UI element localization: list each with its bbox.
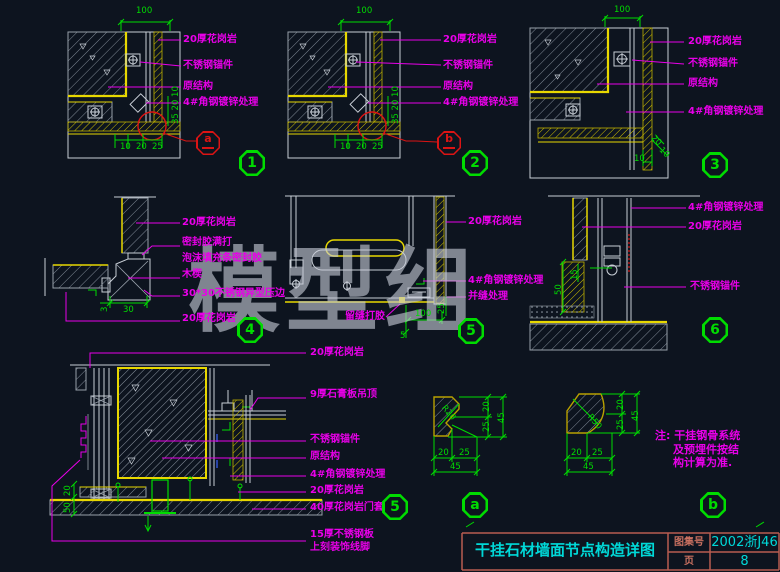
- page-label: 页: [668, 557, 710, 567]
- detail-6-drawing: [530, 196, 700, 350]
- da-dim-h2: 45: [450, 463, 461, 472]
- d4-label-granite-bottom: 20厚花岗岩: [182, 314, 236, 324]
- d7-label-structure: 原结构: [310, 452, 340, 462]
- db-dim-h2: 45: [583, 463, 594, 472]
- d7-label-steel-plate: 15厚不锈钢板: [310, 530, 374, 540]
- atlas-number-value: 2002浙J46: [710, 536, 779, 549]
- d3-dim-bottom: 10: [634, 155, 645, 164]
- d2-label-granite: 20厚花岗岩: [443, 35, 497, 45]
- db-dim-h0: 20: [571, 449, 582, 458]
- d7-dim-50: 50: [64, 502, 73, 513]
- db-dim-v1: 25: [617, 419, 626, 430]
- d7-label-decor-line: 上刻装饰线脚: [310, 543, 370, 553]
- d3-dim-top: 100: [614, 6, 630, 15]
- d1-dim-top: 100: [136, 7, 152, 16]
- d6-badge: 6: [702, 317, 728, 343]
- da-dim-h1: 25: [459, 449, 470, 458]
- da-dim-v2: 45: [498, 412, 507, 423]
- detail-4-drawing: [45, 197, 180, 321]
- d3-label-anchor: 不锈钢锚件: [688, 59, 738, 69]
- d5-label-angle-steel: 4#角钢镀锌处理: [468, 276, 543, 286]
- d7-dim-20: 20: [64, 485, 73, 496]
- d4-label-steel-edge: 30*30不锈钢异型压边: [182, 289, 285, 299]
- detail-7-drawing: [50, 353, 322, 541]
- d4-label-granite-top: 20厚花岗岩: [182, 218, 236, 228]
- d7-label-granite-top: 20厚花岗岩: [310, 348, 364, 358]
- da-dim-v0: 20: [483, 401, 492, 412]
- cad-sheet: 模型组 20厚花岗岩 不锈钢锚件 原结构 4#角钢镀锌处理 100 10 20 …: [0, 0, 780, 572]
- da-badge: a: [462, 492, 488, 518]
- d7-label-door-frame: 40厚花岗岩门套: [310, 503, 384, 513]
- d3-label-angle-steel: 4#角钢镀锌处理: [688, 107, 763, 117]
- d6-label-angle-steel: 4#角钢镀锌处理: [688, 203, 763, 213]
- d4-badge: 4: [237, 317, 263, 343]
- d7-label-anchor: 不锈钢锚件: [310, 435, 360, 445]
- d7-label-angle-steel: 4#角钢镀锌处理: [310, 470, 385, 480]
- d5-dim-25: 25: [438, 303, 447, 314]
- d7-label-granite: 20厚花岗岩: [310, 486, 364, 496]
- detail-b-drawing: [564, 391, 640, 476]
- d2-callout-b: b: [437, 131, 461, 155]
- note-line-3: 构计算为准.: [673, 457, 732, 468]
- sheet-title: 干挂石材墙面节点构造详图: [462, 543, 668, 558]
- db-dim-v2: 45: [632, 410, 641, 421]
- d5-dim-5: 5: [400, 332, 405, 341]
- d7-label-gypsum-ceiling: 9厚石膏板吊顶: [310, 390, 377, 400]
- d1-dim-b0: 10: [120, 143, 131, 152]
- d4-label-foam: 泡沫填充条密封胶: [182, 254, 262, 264]
- d5-label-joint-caulk: 留缝打胶: [345, 312, 385, 322]
- d2-dim-b0: 10: [340, 143, 351, 152]
- detail-2-drawing: [288, 19, 441, 158]
- d4-dim-3: 3: [101, 307, 110, 312]
- d2-dim-top: 100: [356, 7, 372, 16]
- note-line-1: 注: 干挂钢骨系统: [655, 430, 740, 441]
- d5-badge: 5: [458, 318, 484, 344]
- d1-callout-a: a: [196, 131, 220, 155]
- d3-badge: 3: [702, 152, 728, 178]
- d1-label-structure: 原结构: [183, 82, 213, 92]
- d6-dim-15: 15: [571, 269, 580, 280]
- d2-label-anchor: 不锈钢锚件: [443, 61, 493, 71]
- db-badge: b: [700, 492, 726, 518]
- d5-dim-100: 100: [415, 310, 431, 319]
- d2-dim-side: 35 20 10: [392, 86, 401, 124]
- d2-badge: 2: [462, 150, 488, 176]
- d3-label-structure: 原结构: [688, 79, 718, 89]
- d1-dim-b1: 20: [136, 143, 147, 152]
- d6-label-anchor: 不锈钢锚件: [690, 282, 740, 292]
- d3-label-granite: 20厚花岗岩: [688, 37, 742, 47]
- d2-label-structure: 原结构: [443, 82, 473, 92]
- d6-dim-50: 50: [555, 284, 564, 295]
- d2-label-angle-steel: 4#角钢镀锌处理: [443, 98, 518, 108]
- db-dim-v0: 20: [617, 399, 626, 410]
- d5-label-granite: 20厚花岗岩: [468, 217, 522, 227]
- d2-dim-b2: 25: [372, 143, 383, 152]
- d4-dim-30: 30: [123, 306, 134, 315]
- page-value: 8: [710, 555, 779, 568]
- db-dim-h1: 25: [592, 449, 603, 458]
- d2-dim-b1: 20: [356, 143, 367, 152]
- da-dim-v1: 25: [483, 421, 492, 432]
- note-line-2: 及预埋件按结: [673, 444, 739, 455]
- d1-badge: 1: [239, 150, 265, 176]
- d5-label-seam: 并缝处理: [468, 292, 508, 302]
- d4-label-sealant: 密封胶满打: [182, 238, 232, 248]
- da-dim-h0: 20: [438, 449, 449, 458]
- d4-label-wood-wedge: 木楔: [182, 270, 202, 280]
- d1-dim-side: 35 20 10: [172, 86, 181, 124]
- d1-label-angle-steel: 4#角钢镀锌处理: [183, 98, 258, 108]
- d6-label-granite: 20厚花岗岩: [688, 222, 742, 232]
- d1-label-anchor: 不锈钢锚件: [183, 61, 233, 71]
- d1-dim-b2: 25: [152, 143, 163, 152]
- d1-label-granite: 20厚花岗岩: [183, 35, 237, 45]
- d7-badge: 5: [382, 494, 408, 520]
- atlas-number-label: 图集号: [668, 538, 710, 548]
